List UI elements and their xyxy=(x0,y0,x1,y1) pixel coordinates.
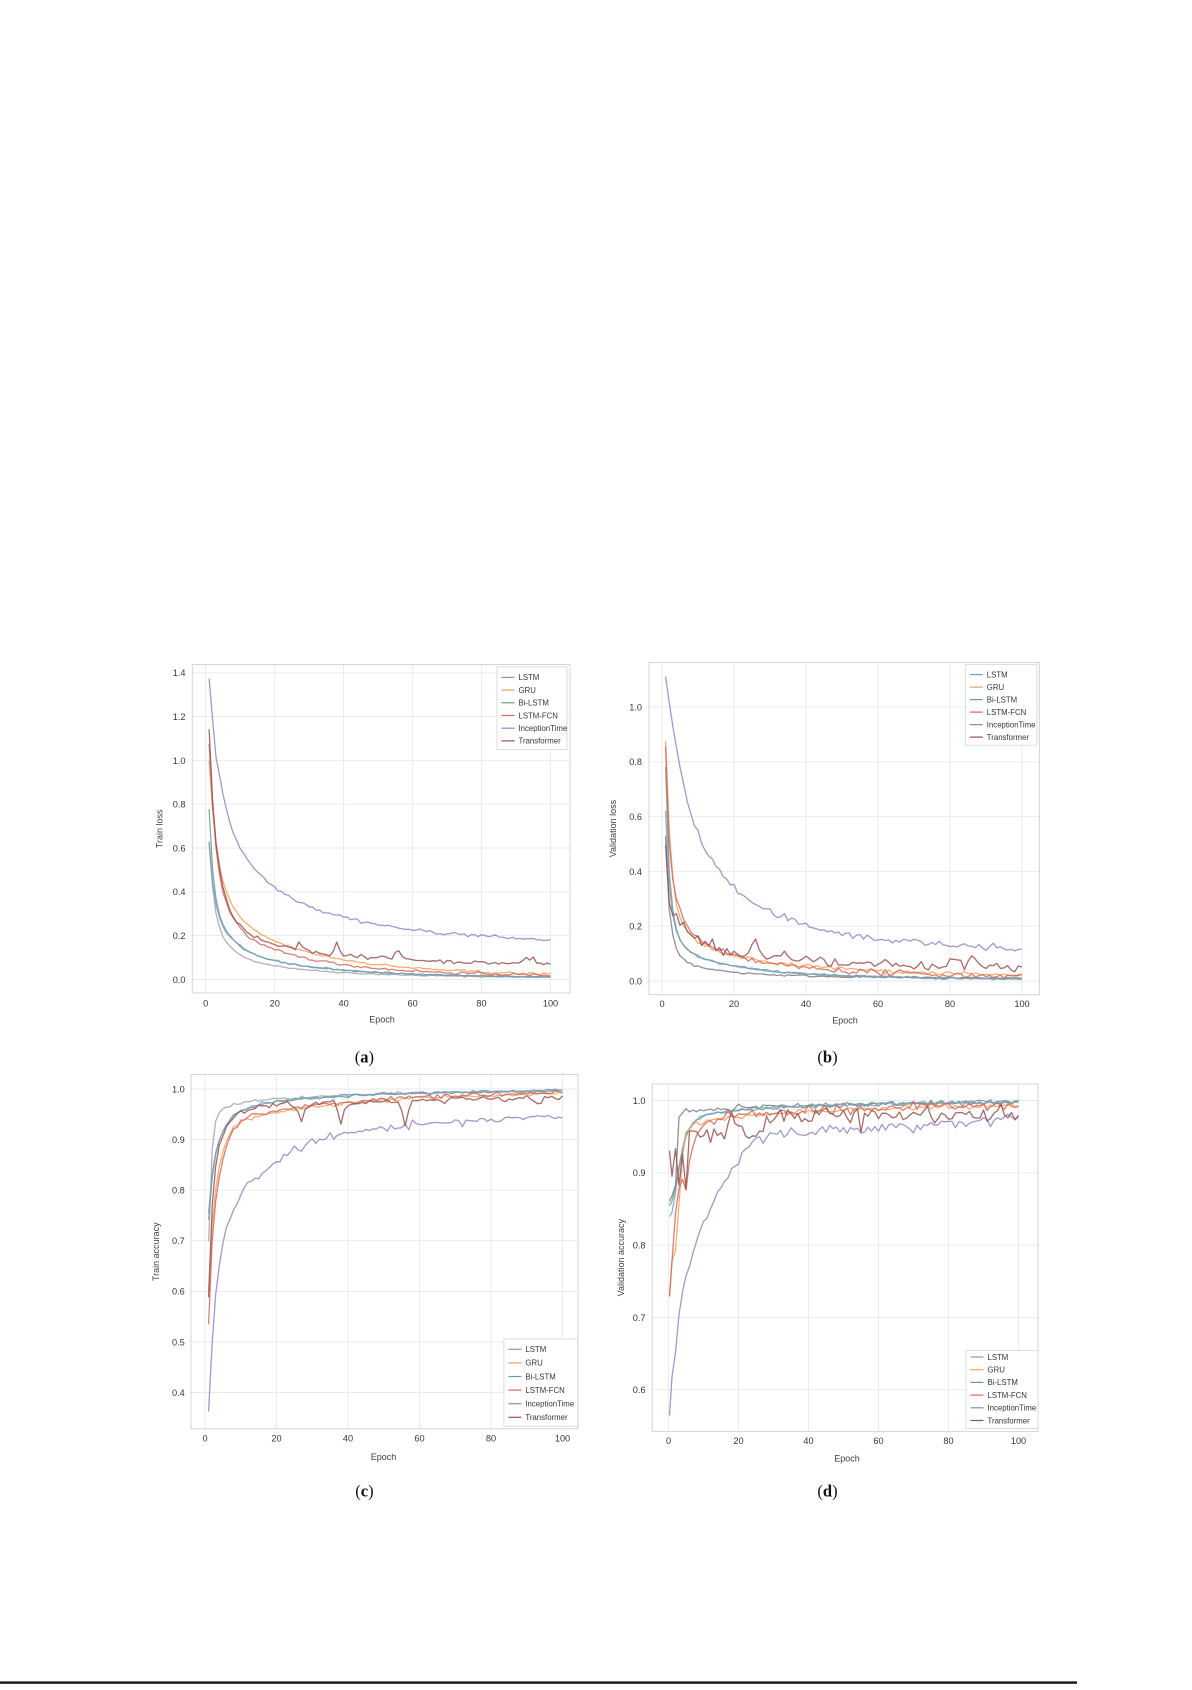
svg-text:LSTM: LSTM xyxy=(988,1353,1009,1362)
svg-text:0.9: 0.9 xyxy=(633,1168,646,1178)
svg-text:1.2: 1.2 xyxy=(173,712,186,722)
svg-text:0.6: 0.6 xyxy=(633,1385,646,1395)
svg-text:GRU: GRU xyxy=(988,1366,1006,1375)
svg-text:GRU: GRU xyxy=(987,683,1005,692)
svg-text:LSTM-FCN: LSTM-FCN xyxy=(987,708,1026,717)
svg-text:0.4: 0.4 xyxy=(173,887,186,897)
svg-text:Validation loss: Validation loss xyxy=(608,799,618,857)
svg-text:Bi-LSTM: Bi-LSTM xyxy=(525,1372,555,1381)
svg-text:40: 40 xyxy=(343,1434,353,1444)
svg-text:0.4: 0.4 xyxy=(172,1388,185,1398)
svg-text:Bi-LSTM: Bi-LSTM xyxy=(519,699,549,708)
svg-text:60: 60 xyxy=(407,999,417,1009)
svg-text:40: 40 xyxy=(803,1436,813,1446)
svg-text:Epoch: Epoch xyxy=(369,1015,395,1025)
svg-text:0.5: 0.5 xyxy=(172,1337,185,1347)
svg-text:Epoch: Epoch xyxy=(371,1452,397,1462)
svg-text:0.2: 0.2 xyxy=(173,931,186,941)
svg-text:InceptionTime: InceptionTime xyxy=(988,1404,1037,1413)
svg-text:0.9: 0.9 xyxy=(172,1135,185,1145)
svg-text:Train accuracy: Train accuracy xyxy=(151,1222,161,1281)
svg-text:Transformer: Transformer xyxy=(987,733,1030,742)
svg-text:Train loss: Train loss xyxy=(155,809,165,848)
svg-text:0: 0 xyxy=(203,999,208,1009)
svg-text:0: 0 xyxy=(659,999,664,1009)
svg-text:20: 20 xyxy=(729,999,739,1009)
svg-text:100: 100 xyxy=(543,999,558,1009)
svg-text:1.4: 1.4 xyxy=(173,668,186,678)
svg-text:20: 20 xyxy=(271,1434,281,1444)
svg-text:1.0: 1.0 xyxy=(629,702,642,712)
svg-text:Epoch: Epoch xyxy=(834,1454,860,1464)
svg-text:Validation accuracy: Validation accuracy xyxy=(616,1219,626,1297)
svg-text:InceptionTime: InceptionTime xyxy=(519,724,568,733)
svg-text:1.0: 1.0 xyxy=(172,1084,185,1094)
svg-text:InceptionTime: InceptionTime xyxy=(987,720,1036,729)
svg-text:60: 60 xyxy=(873,999,883,1009)
svg-text:0.7: 0.7 xyxy=(172,1236,185,1246)
svg-text:0.8: 0.8 xyxy=(173,800,186,810)
svg-text:(d): (d) xyxy=(817,1482,837,1501)
svg-text:0.0: 0.0 xyxy=(173,975,186,985)
svg-text:0.8: 0.8 xyxy=(172,1186,185,1196)
svg-text:80: 80 xyxy=(943,1436,953,1446)
svg-text:0.2: 0.2 xyxy=(629,922,642,932)
svg-text:0.6: 0.6 xyxy=(172,1287,185,1297)
svg-text:0.6: 0.6 xyxy=(629,812,642,822)
svg-text:0.0: 0.0 xyxy=(629,976,642,986)
svg-text:GRU: GRU xyxy=(525,1359,543,1368)
svg-text:LSTM: LSTM xyxy=(987,670,1008,679)
svg-text:100: 100 xyxy=(555,1434,570,1444)
svg-text:(c): (c) xyxy=(355,1482,373,1501)
svg-text:40: 40 xyxy=(338,999,348,1009)
svg-text:100: 100 xyxy=(1011,1436,1026,1446)
svg-text:0.7: 0.7 xyxy=(633,1313,646,1323)
svg-text:80: 80 xyxy=(476,999,486,1009)
svg-text:Bi-LSTM: Bi-LSTM xyxy=(988,1378,1018,1387)
svg-text:20: 20 xyxy=(733,1436,743,1446)
svg-text:40: 40 xyxy=(801,999,811,1009)
svg-text:LSTM-FCN: LSTM-FCN xyxy=(525,1386,564,1395)
svg-text:1.0: 1.0 xyxy=(633,1096,646,1106)
svg-text:0: 0 xyxy=(666,1436,671,1446)
svg-text:LSTM-FCN: LSTM-FCN xyxy=(988,1391,1027,1400)
svg-text:Epoch: Epoch xyxy=(832,1016,858,1026)
svg-text:Transformer: Transformer xyxy=(525,1413,568,1422)
svg-text:LSTM: LSTM xyxy=(519,673,540,682)
svg-text:InceptionTime: InceptionTime xyxy=(525,1400,574,1409)
svg-text:1.0: 1.0 xyxy=(173,756,186,766)
svg-text:80: 80 xyxy=(945,999,955,1009)
svg-text:60: 60 xyxy=(873,1436,883,1446)
svg-text:0.8: 0.8 xyxy=(633,1241,646,1251)
svg-text:0.8: 0.8 xyxy=(629,757,642,767)
svg-text:Transformer: Transformer xyxy=(988,1416,1031,1425)
svg-text:Bi-LSTM: Bi-LSTM xyxy=(987,695,1017,704)
svg-text:0.6: 0.6 xyxy=(173,843,186,853)
svg-text:80: 80 xyxy=(486,1434,496,1444)
svg-text:LSTM: LSTM xyxy=(525,1345,546,1354)
svg-text:20: 20 xyxy=(270,999,280,1009)
svg-text:Transformer: Transformer xyxy=(519,737,562,746)
svg-text:(b): (b) xyxy=(817,1048,837,1067)
svg-text:LSTM-FCN: LSTM-FCN xyxy=(519,711,558,720)
svg-text:100: 100 xyxy=(1014,999,1029,1009)
svg-text:0.4: 0.4 xyxy=(629,867,642,877)
svg-text:60: 60 xyxy=(414,1434,424,1444)
svg-text:0: 0 xyxy=(202,1434,207,1444)
svg-text:(a): (a) xyxy=(355,1048,374,1067)
svg-text:GRU: GRU xyxy=(519,686,537,695)
